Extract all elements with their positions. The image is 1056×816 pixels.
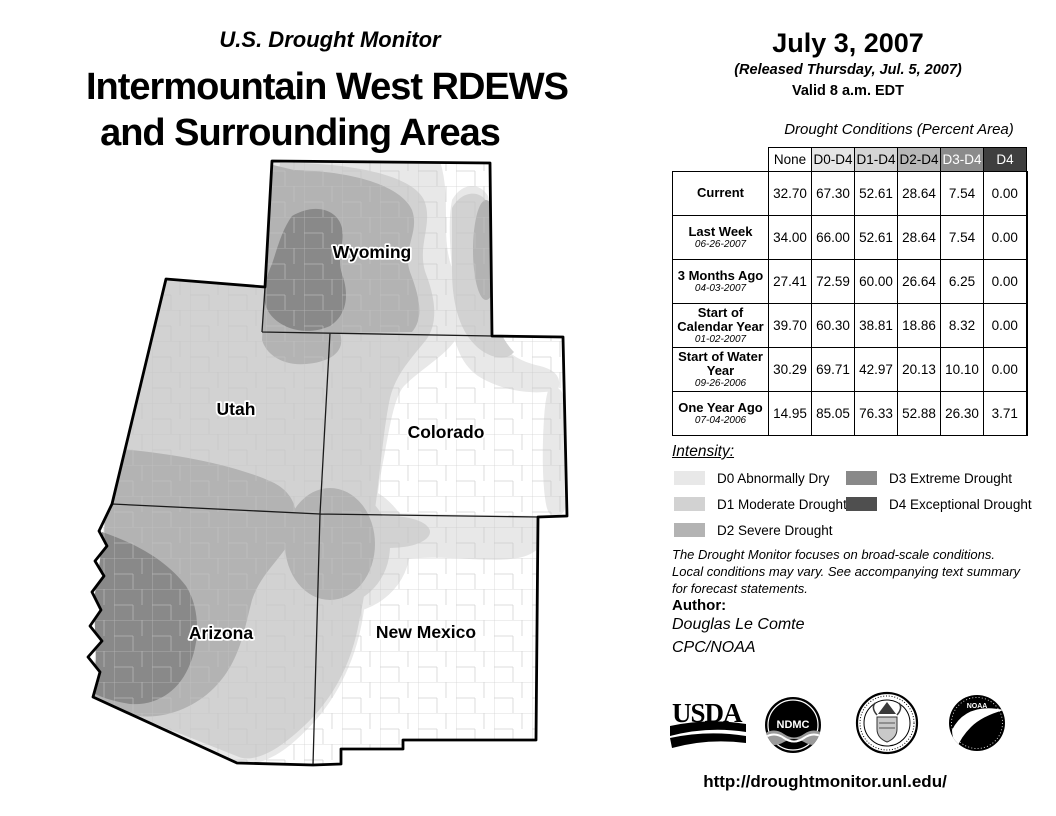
value-cell: 39.70 <box>769 304 812 348</box>
value-cell: 27.41 <box>769 260 812 304</box>
table-row: Start of Water Year09-26-2006 30.29 69.7… <box>673 348 1027 392</box>
usda-logo: USDA <box>670 698 746 748</box>
release-date: (Released Thursday, Jul. 5, 2007) <box>660 62 1036 78</box>
d3-color-swatch <box>846 471 877 485</box>
value-cell: 38.81 <box>855 304 898 348</box>
value-cell: 20.13 <box>898 348 941 392</box>
d1-color-swatch <box>674 497 705 511</box>
table-row: Start of Calendar Year01-02-2007 39.70 6… <box>673 304 1027 348</box>
table-row: 3 Months Ago04-03-2007 27.41 72.59 60.00… <box>673 260 1027 304</box>
valid-time: Valid 8 a.m. EDT <box>660 83 1036 99</box>
column-header: D3-D4 <box>941 148 984 172</box>
legend-item-d3: D3 Extreme Drought <box>846 470 1012 486</box>
value-cell: 66.00 <box>812 216 855 260</box>
drought-conditions-table: None D0-D4 D1-D4 D2-D4 D3-D4 D4 Current … <box>672 147 1028 436</box>
value-cell: 42.97 <box>855 348 898 392</box>
page-title-line2: and Surrounding Areas <box>0 112 600 155</box>
value-cell: 76.33 <box>855 392 898 436</box>
d4-color-swatch <box>846 497 877 511</box>
legend-label: D0 Abnormally Dry <box>717 471 830 486</box>
value-cell: 14.95 <box>769 392 812 436</box>
row-label: Last Week06-26-2007 <box>673 216 769 260</box>
state-label-utah: Utah <box>217 399 256 419</box>
row-label: Start of Calendar Year01-02-2007 <box>673 304 769 348</box>
value-cell: 26.30 <box>941 392 984 436</box>
drought-shading-layers <box>60 140 580 780</box>
legend-label: D2 Severe Drought <box>717 523 833 538</box>
column-header: D2-D4 <box>898 148 941 172</box>
value-cell: 60.00 <box>855 260 898 304</box>
state-label-new-mexico: New Mexico <box>376 622 476 642</box>
ndmc-logo-text: NDMC <box>777 719 810 731</box>
author-name: Douglas Le Comte <box>672 616 805 634</box>
map-date: July 3, 2007 <box>660 28 1036 59</box>
department-of-commerce-seal <box>857 693 917 753</box>
state-label-wyoming: Wyoming <box>333 242 411 262</box>
column-header: D1-D4 <box>855 148 898 172</box>
d0-color-swatch <box>674 471 705 485</box>
table-header-row: None D0-D4 D1-D4 D2-D4 D3-D4 D4 <box>673 148 1027 172</box>
value-cell: 69.71 <box>812 348 855 392</box>
value-cell: 26.64 <box>898 260 941 304</box>
page-title-line1: Intermountain West RDEWS <box>27 66 627 109</box>
column-header: None <box>769 148 812 172</box>
value-cell: 52.61 <box>855 172 898 216</box>
author-heading: Author: <box>672 597 726 614</box>
value-cell: 67.30 <box>812 172 855 216</box>
value-cell: 60.30 <box>812 304 855 348</box>
value-cell: 52.61 <box>855 216 898 260</box>
legend-item-d0: D0 Abnormally Dry <box>674 470 830 486</box>
legend-item-d2: D2 Severe Drought <box>674 522 833 538</box>
value-cell: 10.10 <box>941 348 984 392</box>
value-cell: 18.86 <box>898 304 941 348</box>
value-cell: 3.71 <box>984 392 1027 436</box>
value-cell: 0.00 <box>984 304 1027 348</box>
value-cell: 85.05 <box>812 392 855 436</box>
row-label: Start of Water Year09-26-2006 <box>673 348 769 392</box>
table-row: Current 32.70 67.30 52.61 28.64 7.54 0.0… <box>673 172 1027 216</box>
corner-cell <box>673 148 769 172</box>
column-header: D0-D4 <box>812 148 855 172</box>
value-cell: 0.00 <box>984 216 1027 260</box>
value-cell: 30.29 <box>769 348 812 392</box>
disclaimer-line: The Drought Monitor focuses on broad-sca… <box>672 546 1044 563</box>
value-cell: 0.00 <box>984 348 1027 392</box>
value-cell: 32.70 <box>769 172 812 216</box>
noaa-logo: NOAA <box>949 695 1005 751</box>
ndmc-logo: NDMC <box>764 697 824 753</box>
value-cell: 8.32 <box>941 304 984 348</box>
state-label-arizona: Arizona <box>189 623 253 643</box>
legend-label: D3 Extreme Drought <box>889 471 1012 486</box>
drought-monitor-page: Wyoming Utah Colorado Arizona New Mexico… <box>0 0 1056 816</box>
value-cell: 52.88 <box>898 392 941 436</box>
value-cell: 0.00 <box>984 260 1027 304</box>
table-row: Last Week06-26-2007 34.00 66.00 52.61 28… <box>673 216 1027 260</box>
website-url: http://droughtmonitor.unl.edu/ <box>655 772 995 792</box>
disclaimer-line: Local conditions may vary. See accompany… <box>672 563 1044 580</box>
supertitle: U.S. Drought Monitor <box>30 27 630 53</box>
table-row: One Year Ago07-04-2006 14.95 85.05 76.33… <box>673 392 1027 436</box>
value-cell: 0.00 <box>984 172 1027 216</box>
disclaimer-line: for forecast statements. <box>672 580 1044 597</box>
legend-item-d4: D4 Exceptional Drought <box>846 496 1032 512</box>
column-header: D4 <box>984 148 1027 172</box>
row-label: One Year Ago07-04-2006 <box>673 392 769 436</box>
logos-row: USDA NDMC <box>664 688 1024 766</box>
d2-color-swatch <box>674 523 705 537</box>
table-caption: Drought Conditions (Percent Area) <box>768 121 1030 138</box>
legend-label: D1 Moderate Drought <box>717 497 847 512</box>
disclaimer-text: The Drought Monitor focuses on broad-sca… <box>672 546 1044 597</box>
legend-item-d1: D1 Moderate Drought <box>674 496 847 512</box>
value-cell: 7.54 <box>941 216 984 260</box>
legend-label: D4 Exceptional Drought <box>889 497 1032 512</box>
value-cell: 72.59 <box>812 260 855 304</box>
county-lines <box>60 140 580 780</box>
value-cell: 28.64 <box>898 216 941 260</box>
row-label: Current <box>673 172 769 216</box>
legend-heading: Intensity: <box>672 443 734 461</box>
author-org: CPC/NOAA <box>672 639 756 657</box>
state-label-colorado: Colorado <box>408 422 485 442</box>
value-cell: 6.25 <box>941 260 984 304</box>
value-cell: 28.64 <box>898 172 941 216</box>
row-label: 3 Months Ago04-03-2007 <box>673 260 769 304</box>
value-cell: 34.00 <box>769 216 812 260</box>
noaa-logo-text: NOAA <box>967 703 988 710</box>
value-cell: 7.54 <box>941 172 984 216</box>
